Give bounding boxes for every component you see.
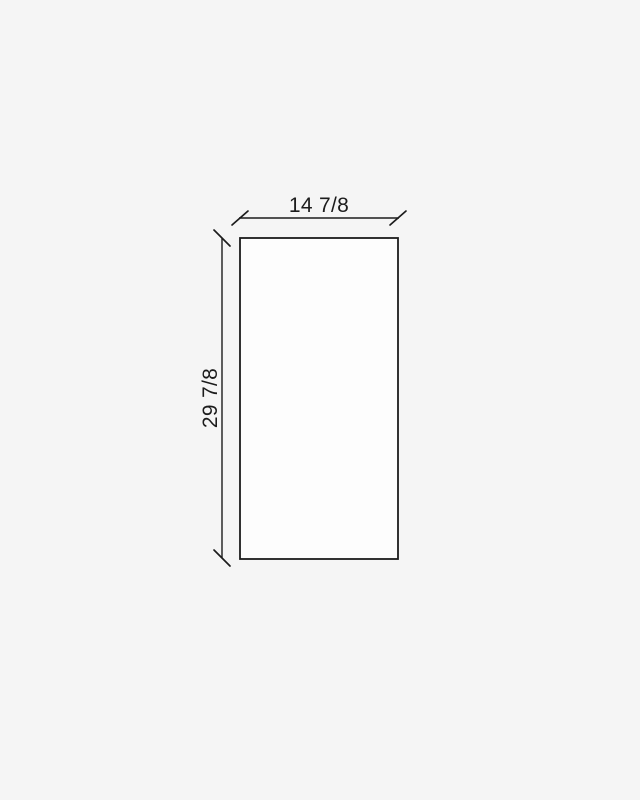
dimension-diagram: 14 7/8 29 7/8 bbox=[0, 0, 640, 800]
width-dimension: 14 7/8 bbox=[232, 194, 406, 225]
height-dimension: 29 7/8 bbox=[199, 230, 230, 566]
width-dimension-label: 14 7/8 bbox=[289, 194, 349, 217]
drawing-canvas: 14 7/8 29 7/8 bbox=[0, 0, 640, 800]
height-dimension-label: 29 7/8 bbox=[199, 368, 222, 428]
panel-rect bbox=[240, 238, 398, 559]
